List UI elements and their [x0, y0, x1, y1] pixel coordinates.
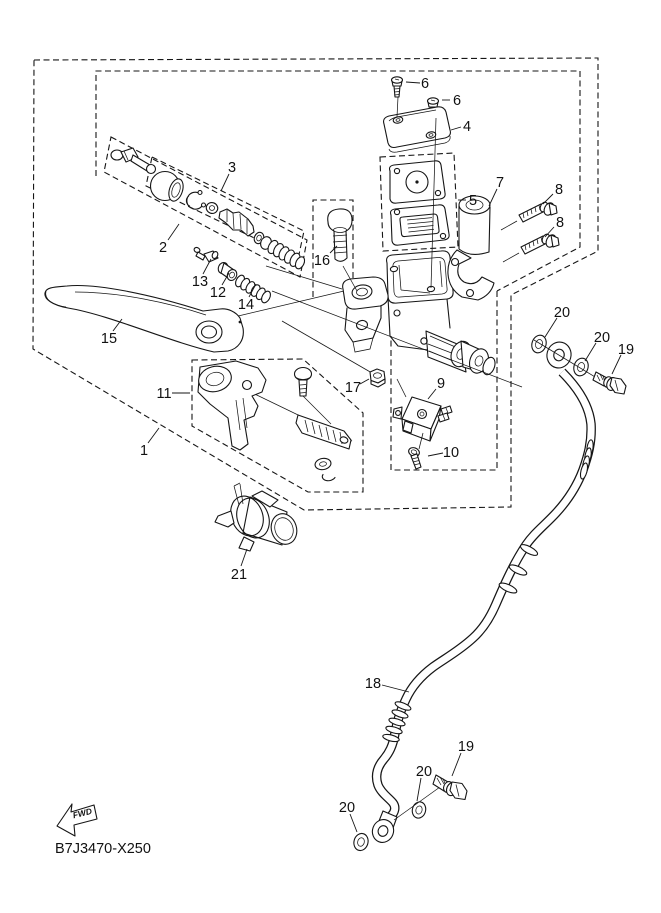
- callout-leader-1: [148, 428, 159, 443]
- part-3-circlip: [186, 191, 205, 210]
- callout-leader-17: [360, 379, 369, 384]
- callout-label-15: 15: [101, 331, 117, 347]
- callout-label-9: 9: [437, 376, 445, 392]
- callout-label-7: 7: [496, 175, 504, 191]
- part-19-union-bolt-upper: [593, 372, 626, 394]
- part-11-snap-ring: [322, 475, 335, 481]
- callout-label-6: 6: [453, 93, 461, 109]
- master-cylinder-body: [343, 251, 498, 376]
- callout-label-10: 10: [443, 445, 459, 461]
- part-11-serrated-plate: [296, 415, 351, 449]
- callout-label-8: 8: [555, 182, 563, 198]
- part-2-boot-cup: [151, 172, 186, 203]
- part-18-brake-hose: [369, 339, 594, 845]
- parts-diagram-page: FWD B7J3470-X250 66457883213121416151111…: [0, 0, 661, 913]
- callout-leader-6: [406, 82, 420, 83]
- part-21-clamp: [215, 483, 301, 551]
- callout-label-2: 2: [159, 240, 167, 256]
- callout-leader-19: [452, 753, 461, 776]
- part-5-diaphragm: [391, 205, 450, 245]
- callout-label-5: 5: [469, 193, 477, 209]
- boundary-boxes: [33, 58, 598, 510]
- callout-label-3: 3: [228, 160, 236, 176]
- callout-label-13: 13: [192, 274, 208, 290]
- callout-leader-7: [489, 189, 497, 206]
- callout-label-16: 16: [314, 253, 330, 269]
- callout-label-12: 12: [210, 285, 226, 301]
- callout-label-11: 11: [156, 386, 171, 402]
- callout-label-17: 17: [345, 380, 361, 396]
- part-8-bolt-b: [503, 233, 559, 262]
- part-3-washer: [205, 201, 220, 215]
- callout-leader-18: [382, 685, 409, 692]
- part-12-bushing: [216, 261, 238, 282]
- part-11-pivot-screw: [295, 368, 312, 397]
- callout-label-21: 21: [231, 567, 247, 583]
- callout-label-8: 8: [556, 215, 564, 231]
- callout-leader-13: [203, 259, 211, 274]
- callout-label-20: 20: [554, 305, 570, 321]
- callout-leader-20: [417, 778, 421, 801]
- part-5-diaphragm-plate: [390, 161, 446, 203]
- callout-leader-4: [451, 127, 461, 130]
- callout-leader-20: [350, 814, 357, 832]
- callout-leader-9: [428, 389, 436, 399]
- part-10-screw: [407, 433, 423, 469]
- part-17-nut: [370, 369, 385, 387]
- callout-label-20: 20: [594, 330, 610, 346]
- callout-leader-21: [241, 549, 247, 566]
- exploded-parts-diagram: FWD B7J3470-X250 66457883213121416151111…: [0, 0, 661, 913]
- fwd-arrow: FWD: [57, 804, 97, 836]
- callout-label-4: 4: [463, 119, 471, 135]
- part-6-screw-a: [392, 77, 403, 97]
- drawing-code: B7J3470-X250: [55, 841, 151, 857]
- callout-label-14: 14: [238, 297, 254, 313]
- part-8-bolt-a: [501, 201, 557, 230]
- callout-label-6: 6: [421, 76, 429, 92]
- part-11-washer: [314, 457, 332, 471]
- part-11-lever-holder: [196, 361, 266, 450]
- callout-label-19: 19: [618, 342, 634, 358]
- callout-leader-10: [428, 453, 443, 456]
- part-7-handlebar-holder: [448, 196, 494, 300]
- part-3-spring: [266, 239, 306, 271]
- part-4-reservoir-cap: [384, 107, 451, 152]
- callout-leader-3: [221, 174, 229, 191]
- boundary-box-1: [33, 58, 598, 510]
- callout-label-19: 19: [458, 739, 474, 755]
- callout-label-18: 18: [365, 676, 381, 692]
- part-19-union-bolt-lower: [433, 775, 467, 800]
- part-2-pushrod: [111, 148, 156, 174]
- part-3-piston: [219, 209, 254, 236]
- callout-label-1: 1: [140, 443, 148, 459]
- callout-label-20: 20: [416, 764, 432, 780]
- callout-label-20: 20: [339, 800, 355, 816]
- part-13-adjuster: [193, 247, 219, 262]
- callout-leader-2: [168, 224, 179, 240]
